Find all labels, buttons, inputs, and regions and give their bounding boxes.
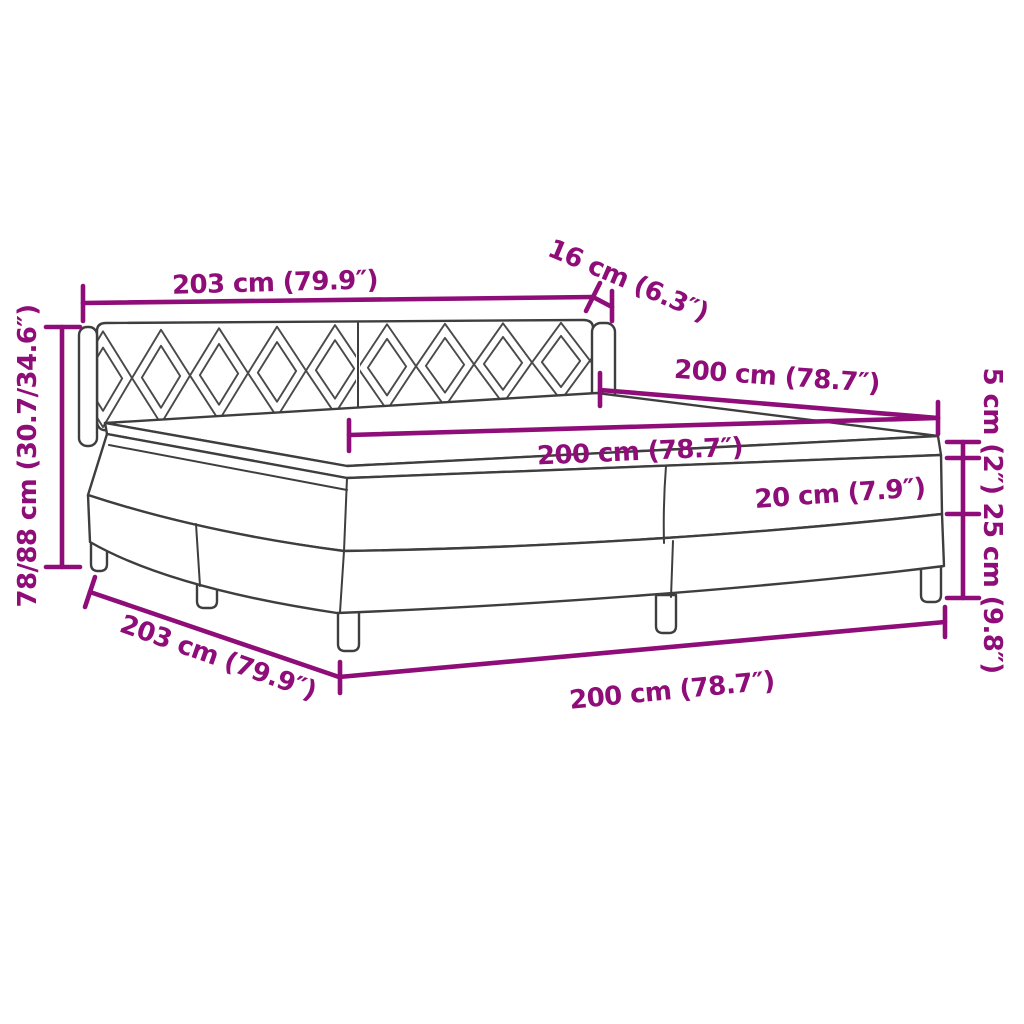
dimension-line [593,297,612,307]
dimension-label-headboard-depth: 16 cm (6.3″) [543,234,712,328]
dimension-label-bed-length-top: 200 cm (78.7″) [673,355,881,399]
dimension-label-bed-length-bottom: 200 cm (78.7″) [568,666,776,716]
dimension-bed-length-bottom: 200 cm (78.7″) [339,607,945,716]
product-dimension-diagram: 203 cm (79.9″) 16 cm (6.3″) 200 cm (78.7… [0,0,1024,1024]
bed-leg [921,566,941,602]
dimension-right-heights: 5 cm (2″) 25 cm (9.8″) [947,368,1007,674]
dimension-line [83,297,593,303]
bed-leg [338,611,359,651]
bed-diagram-canvas: 203 cm (79.9″) 16 cm (6.3″) 200 cm (78.7… [0,0,1024,1024]
dimension-label-base-height: 25 cm (9.8″) [977,502,1007,673]
dimension-label-topper-height: 5 cm (2″) [977,368,1007,495]
dimension-headboard-width: 203 cm (79.9″) [83,265,600,321]
dimension-line [339,622,945,677]
dimension-label-headboard-width: 203 cm (79.9″) [172,265,379,300]
headboard-left-wing [79,327,97,446]
dimension-label-total-height: 78/88 cm (30.7/34.6″) [13,304,43,607]
dimension-headboard-depth: 16 cm (6.3″) [543,234,712,328]
bed-leg [656,595,676,633]
dimension-total-height: 78/88 cm (30.7/34.6″) [13,304,80,607]
